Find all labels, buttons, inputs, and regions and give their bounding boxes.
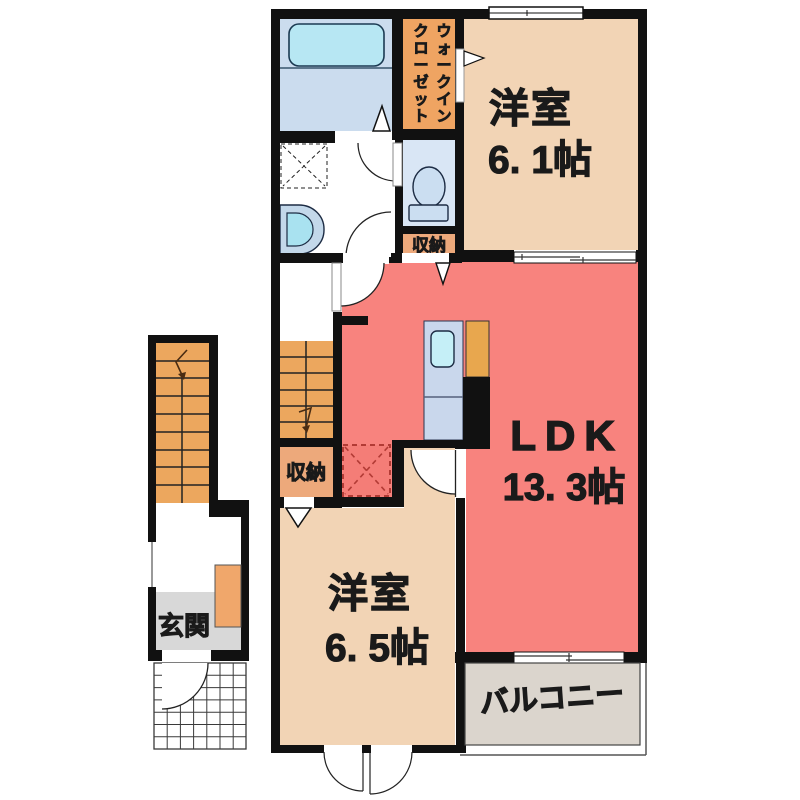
svg-text:LDK: LDK: [510, 412, 623, 459]
svg-text:ロ: ロ: [413, 40, 428, 57]
svg-text:イ: イ: [436, 91, 451, 108]
svg-text:収納: 収納: [412, 235, 446, 255]
svg-text:6. 1帖: 6. 1帖: [488, 139, 592, 182]
svg-text:ク: ク: [436, 74, 451, 91]
svg-text:13. 3帖: 13. 3帖: [503, 467, 626, 509]
svg-text:ッ: ッ: [413, 91, 428, 108]
svg-text:ウ: ウ: [436, 23, 451, 40]
svg-text:ー: ー: [436, 57, 451, 74]
svg-text:洋室: 洋室: [328, 572, 412, 616]
svg-text:ン: ン: [436, 108, 451, 125]
svg-text:ー: ー: [413, 57, 428, 74]
svg-text:ォ: ォ: [436, 40, 451, 57]
svg-text:ゼ: ゼ: [413, 73, 428, 91]
svg-text:ト: ト: [413, 108, 428, 125]
svg-text:洋室: 洋室: [489, 87, 573, 131]
svg-text:ク: ク: [413, 23, 428, 40]
svg-text:収納: 収納: [286, 460, 326, 484]
svg-text:6. 5帖: 6. 5帖: [325, 627, 429, 670]
svg-text:玄関: 玄関: [158, 611, 210, 641]
